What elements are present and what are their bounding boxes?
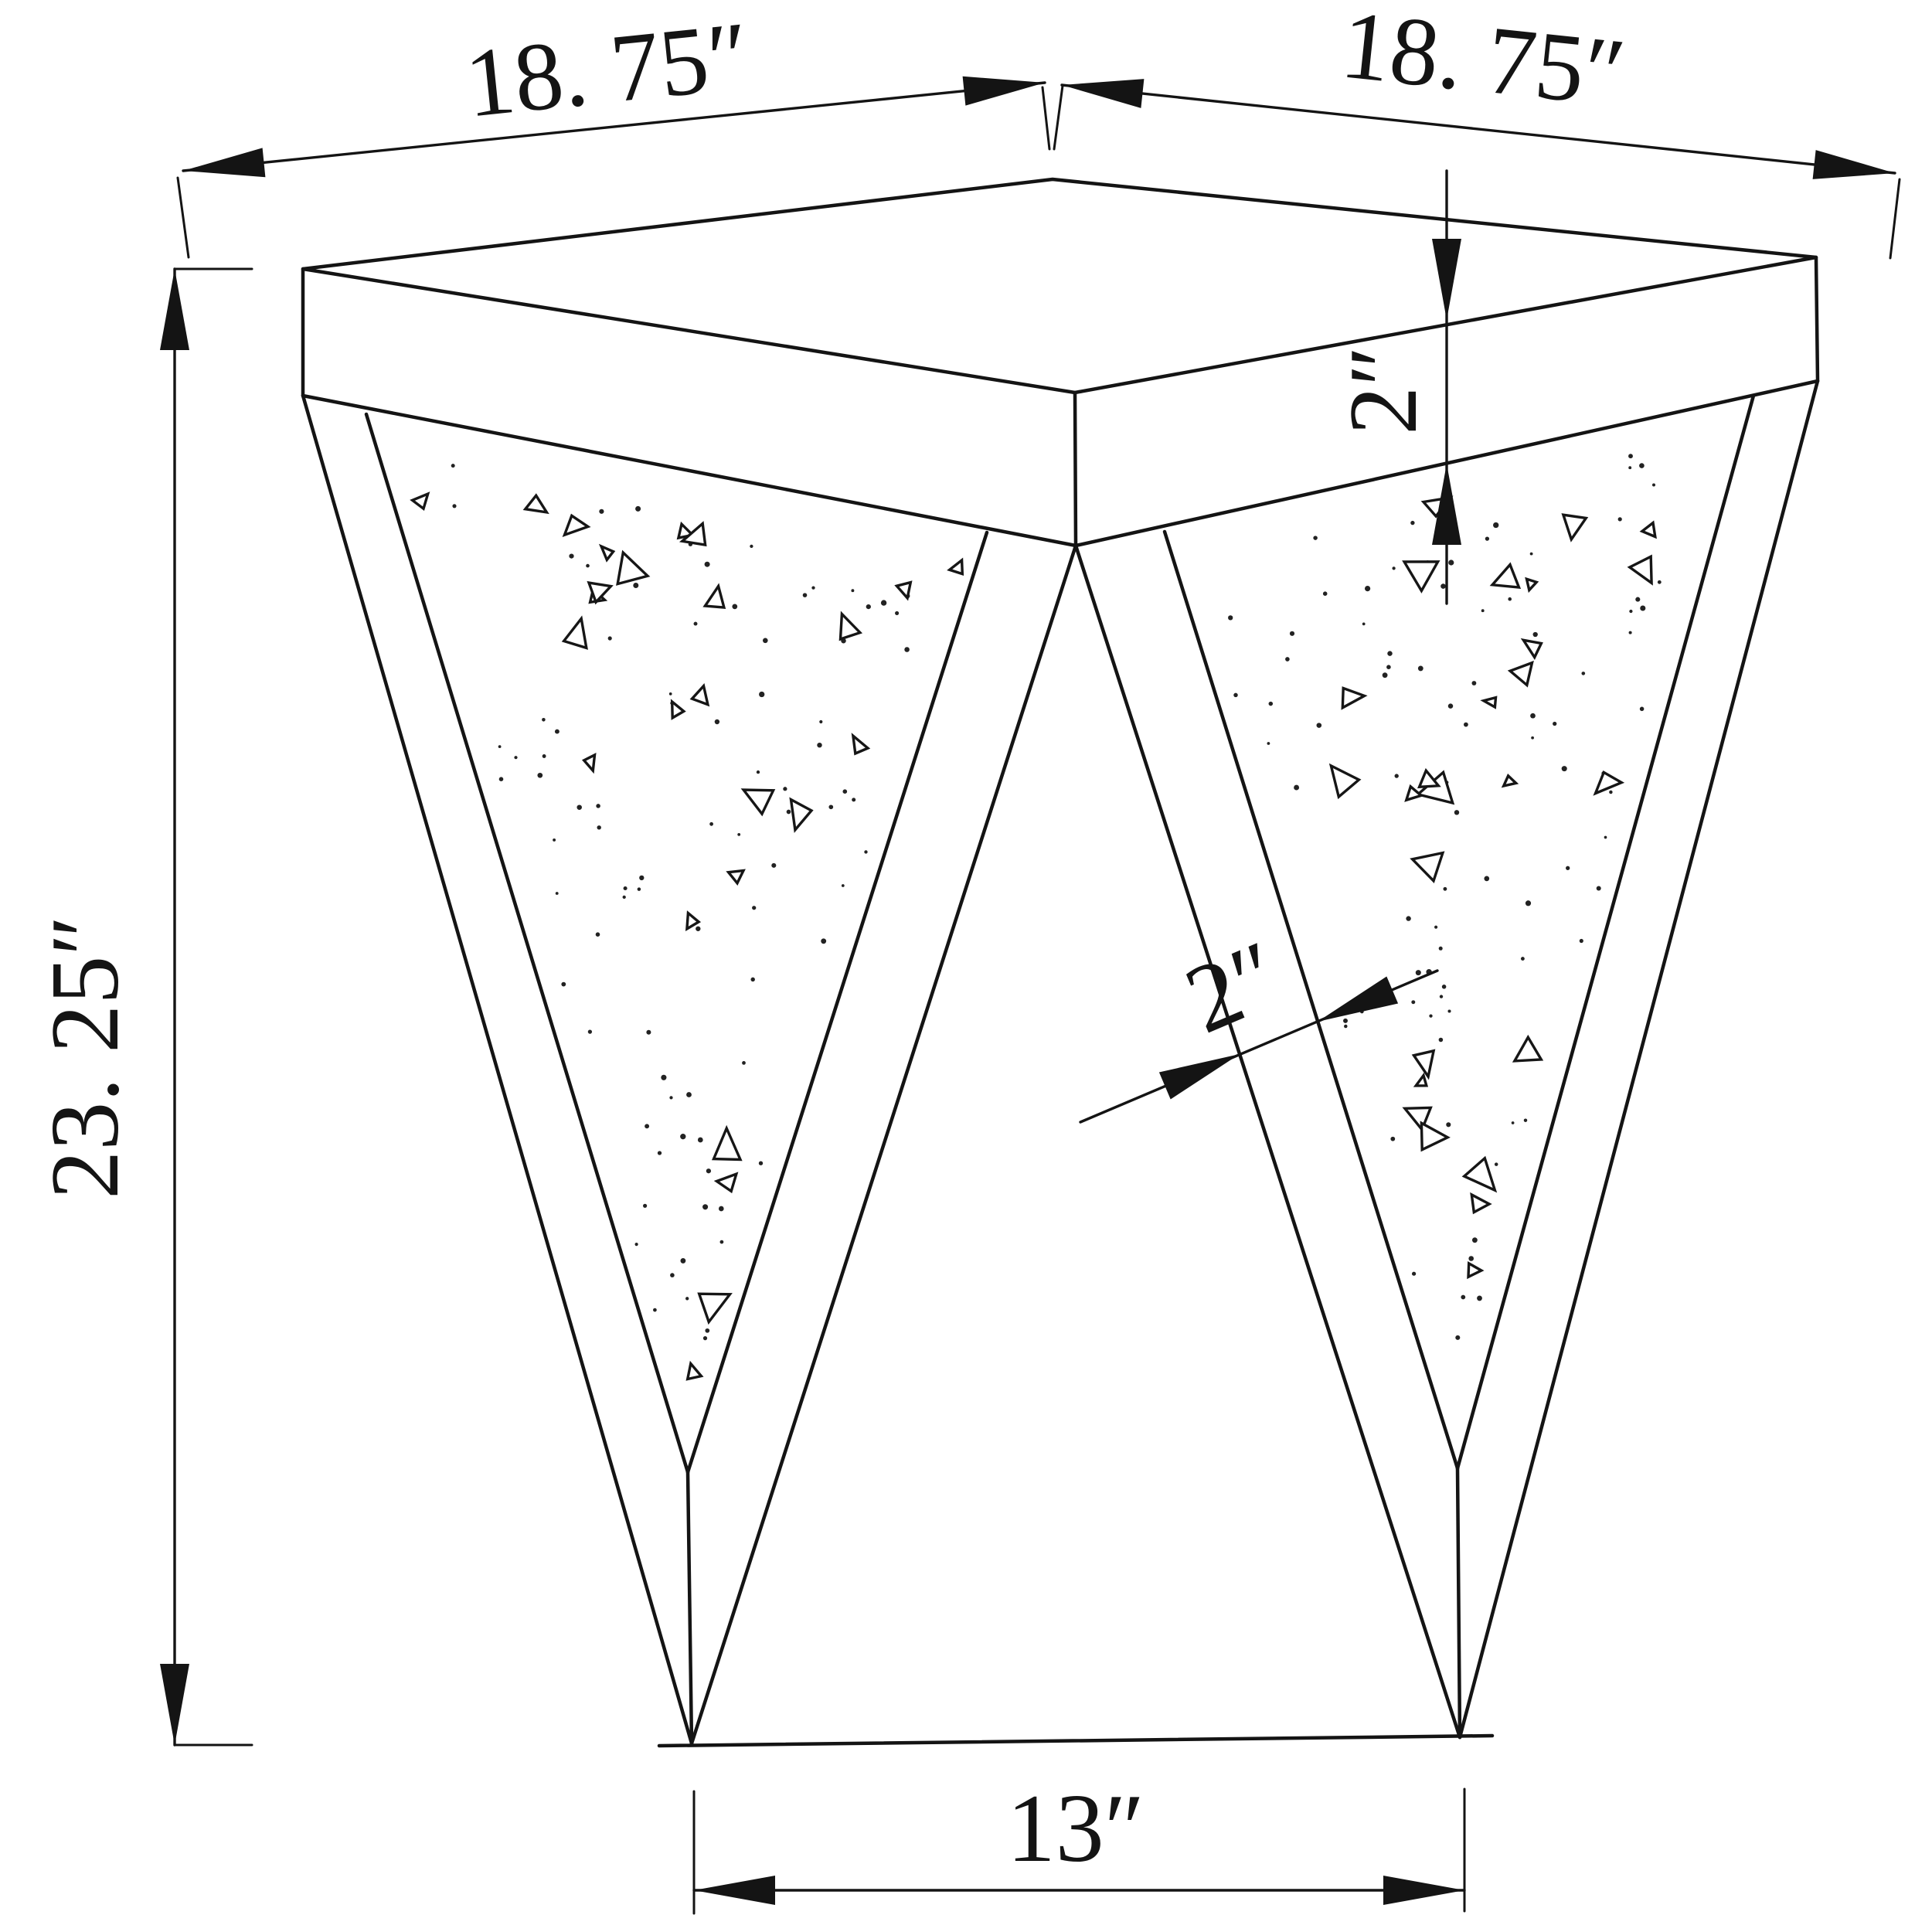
- speckle-dot: [680, 1134, 685, 1139]
- speckle-dot: [1639, 463, 1645, 468]
- speckle-dot: [1390, 1137, 1395, 1141]
- left-leg-outer-right-edge: [692, 546, 1076, 1743]
- speckle-dot: [752, 906, 756, 910]
- speckle-dot: [553, 838, 556, 842]
- speckle-triangle: [705, 587, 724, 608]
- speckle-dot: [732, 604, 737, 610]
- speckle-triangle: [564, 618, 587, 648]
- left-leg-outer-left-edge: [303, 396, 692, 1743]
- speckle-dot: [1658, 580, 1662, 584]
- speckle-dot: [1477, 1295, 1482, 1301]
- speckle-dot: [709, 822, 713, 826]
- speckle-dot: [586, 564, 590, 568]
- right-leg-seam-edge: [1458, 1468, 1460, 1737]
- speckle-triangle: [896, 583, 910, 598]
- speckle-dot: [705, 1328, 709, 1333]
- dim-height-arrow-bottom: [160, 1664, 189, 1745]
- speckle-triangle: [1510, 663, 1532, 685]
- speckle-triangle: [601, 546, 614, 560]
- speckle-triangle: [1404, 562, 1438, 591]
- speckle-dot: [694, 622, 698, 626]
- speckle-dot: [702, 1204, 708, 1209]
- speckle-dot: [1395, 774, 1399, 777]
- speckle-dot: [1628, 454, 1633, 458]
- speckle-triangle: [692, 686, 708, 705]
- speckle-dot: [851, 589, 854, 592]
- speckle-dot: [864, 850, 867, 853]
- speckle-dot: [1233, 693, 1238, 698]
- speckle-dot: [1365, 586, 1370, 591]
- speckle-dot: [828, 804, 833, 809]
- apex-extension-left: [1043, 87, 1049, 149]
- speckle-dot: [451, 464, 455, 468]
- dim-top-thickness: 2″: [1330, 171, 1461, 604]
- speckle-dot: [763, 638, 768, 643]
- speckle-dot: [669, 1096, 672, 1099]
- speckle-triangle: [1331, 766, 1359, 797]
- speckle-dot: [1484, 876, 1489, 882]
- speckle-triangle: [672, 702, 684, 718]
- speckle-dot: [881, 600, 886, 605]
- speckle-dot: [608, 636, 612, 640]
- speckle-dot: [1446, 1122, 1451, 1127]
- speckle-dot: [599, 509, 604, 514]
- dim-overall-height: 23. 25″: [32, 269, 252, 1745]
- speckle-dot: [1439, 947, 1443, 951]
- speckle-dot: [680, 1258, 685, 1264]
- tabletop-fascia-bottom-edges: [303, 381, 1818, 546]
- dim-top-left-width: 18. 75″: [178, 2, 1045, 257]
- dim-thickness-label: 2″: [1330, 345, 1437, 434]
- speckle-dot: [633, 583, 638, 588]
- speckle-dot: [1629, 610, 1632, 613]
- speckle-triangle: [950, 560, 963, 574]
- speckle-dot: [1343, 1019, 1348, 1023]
- speckle-dot: [643, 1204, 647, 1208]
- dim-leg-width-label: 2″: [1171, 920, 1295, 1054]
- speckle-triangle: [1416, 1076, 1427, 1086]
- speckle-dot: [1640, 605, 1645, 611]
- speckle-dot: [1439, 1038, 1444, 1043]
- speckle-dot: [1461, 1295, 1465, 1300]
- speckle-dot: [1508, 597, 1512, 601]
- speckle-dot: [569, 554, 573, 559]
- speckle-dot: [1285, 657, 1290, 662]
- tabletop-fascia-right-corner-edge: [1816, 257, 1818, 381]
- speckle-dot: [1448, 560, 1454, 565]
- speckle-dot: [542, 718, 546, 722]
- speckle-dot: [759, 692, 764, 697]
- speckle-dot: [819, 720, 822, 723]
- speckle-dot: [698, 1138, 703, 1143]
- drawing-page: 18. 75″ 18. 75″ 23. 25″ 2″ 2″: [0, 0, 1932, 1932]
- speckle-dot: [1429, 1014, 1432, 1017]
- speckle-dot: [1383, 672, 1388, 678]
- speckle-dot: [866, 604, 871, 609]
- speckle-triangle: [791, 800, 812, 830]
- speckle-triangle: [565, 515, 588, 535]
- speckle-dot: [1566, 866, 1570, 870]
- speckle-dot: [537, 773, 543, 778]
- speckle-dot: [452, 504, 456, 508]
- speckle-dot: [1472, 1237, 1478, 1243]
- dim-top-right-label: 18. 75″: [1336, 0, 1630, 128]
- speckle-dot: [1440, 995, 1443, 998]
- speckle-dot: [1454, 810, 1459, 815]
- speckle-triangle: [1630, 556, 1651, 583]
- dim-leg-width-arrow-left: [1159, 1054, 1240, 1100]
- right-leg-outer-left-edge: [1076, 546, 1460, 1737]
- speckle-triangle: [853, 736, 868, 753]
- speckle-dot: [1411, 1000, 1415, 1004]
- speckle-dot: [1290, 631, 1294, 636]
- dim-bottom-span: 13″: [694, 1775, 1464, 1913]
- speckle-dot: [658, 1151, 662, 1155]
- speckle-dot: [1294, 785, 1299, 791]
- speckle-dot: [719, 1206, 724, 1212]
- technical-drawing-canvas: 18. 75″ 18. 75″ 23. 25″ 2″ 2″: [0, 0, 1932, 1932]
- speckle-triangle: [1563, 515, 1586, 539]
- speckle-dot: [1269, 702, 1274, 706]
- speckle-triangle: [1471, 1195, 1489, 1213]
- speckle-dot: [737, 833, 740, 836]
- speckle-dot: [638, 887, 641, 891]
- speckle-dot: [817, 743, 821, 747]
- speckle-dot: [1448, 703, 1453, 708]
- speckle-dot: [596, 932, 600, 937]
- speckle-triangle: [413, 494, 428, 509]
- speckle-triangle: [1504, 776, 1516, 786]
- dim-height-arrow-top: [160, 269, 189, 350]
- dim-leg-frame-width: 2″: [1080, 920, 1437, 1122]
- speckle-triangle: [1468, 1264, 1481, 1277]
- speckle-triangle: [699, 1294, 730, 1321]
- dim-bottom-label: 13″: [1007, 1775, 1145, 1883]
- speckle-dot: [759, 1162, 763, 1165]
- speckle-dot: [1628, 466, 1631, 469]
- dim-bottom-arrow-right: [1383, 1876, 1464, 1905]
- speckle-dot: [498, 745, 502, 748]
- dim-top-apex-extensions: [1043, 86, 1063, 149]
- speckle-dot: [1553, 722, 1556, 726]
- speckle-dot: [1618, 517, 1622, 521]
- speckle-triangle: [1421, 1123, 1447, 1149]
- speckle-dot: [645, 1124, 649, 1128]
- speckle-dot: [1442, 985, 1447, 989]
- speckle-dot: [842, 789, 847, 794]
- speckle-dot: [742, 1061, 746, 1065]
- speckle-triangle: [841, 614, 860, 640]
- tabletop-top-surface: [303, 179, 1816, 393]
- dim-top-right-extension: [1890, 179, 1900, 258]
- speckle-dot: [686, 1092, 692, 1097]
- speckle-dot: [1228, 615, 1233, 620]
- speckle-dot: [1597, 886, 1601, 890]
- speckle-triangle: [584, 755, 595, 770]
- speckle-triangle: [1413, 853, 1443, 881]
- speckle-triangle: [1342, 689, 1364, 708]
- speckle-dot: [577, 804, 582, 810]
- speckle-dot: [705, 562, 710, 567]
- speckle-dot: [1530, 713, 1536, 719]
- speckle-triangle: [1484, 698, 1496, 707]
- speckle-dot: [895, 611, 899, 615]
- speckle-dot: [635, 506, 641, 512]
- speckle-dot: [1652, 484, 1655, 487]
- speckle-triangle: [617, 553, 648, 584]
- speckle-dot: [624, 886, 628, 890]
- speckle-dot: [670, 1273, 675, 1277]
- speckle-dot: [1313, 536, 1318, 540]
- speckle-dot: [1317, 723, 1322, 728]
- speckle-dot: [1524, 1118, 1527, 1121]
- speckle-dot: [1412, 1272, 1416, 1276]
- speckle-triangle: [687, 913, 699, 929]
- speckle-dot: [1526, 900, 1531, 906]
- speckle-triangle: [1596, 772, 1622, 793]
- speckle-dot: [661, 1075, 666, 1080]
- dim-thickness-arrow-down: [1432, 239, 1461, 320]
- speckle-dot: [597, 825, 600, 829]
- speckle-dot: [720, 1240, 724, 1244]
- speckle-triangle: [1523, 640, 1541, 657]
- dim-bottom-arrow-left: [694, 1876, 775, 1905]
- left-leg-seam-edge: [688, 1472, 692, 1743]
- speckle-triangle: [1515, 1037, 1541, 1061]
- apex-extension-right: [1054, 86, 1063, 149]
- speckle-dot: [561, 982, 566, 987]
- dim-top-right-arrow-left: [1062, 79, 1144, 108]
- dim-height-label: 23. 25″: [32, 915, 139, 1199]
- speckle-dot: [811, 586, 815, 589]
- speckle-dot: [1629, 631, 1632, 634]
- speckle-dot: [1455, 1335, 1460, 1340]
- speckle-dot: [543, 754, 546, 758]
- speckle-dot: [1410, 521, 1414, 525]
- speckle-dot: [646, 1030, 651, 1035]
- speckle-triangle: [1527, 579, 1537, 590]
- speckle-triangle: [1414, 1051, 1434, 1077]
- dim-leg-width-arrow-right: [1318, 977, 1398, 1022]
- speckle-dot: [653, 1308, 657, 1312]
- speckle-triangle: [743, 790, 774, 814]
- dim-top-right-arrow-right: [1813, 150, 1895, 179]
- speckle-dot: [555, 730, 560, 734]
- speckle-dot: [1512, 1121, 1515, 1124]
- speckle-dot: [1485, 536, 1489, 540]
- dim-top-left-extension: [178, 178, 189, 257]
- speckle-dot: [706, 1168, 711, 1173]
- speckle-triangle: [1406, 787, 1421, 801]
- speckle-dot: [904, 647, 910, 652]
- speckle-dot: [1362, 623, 1366, 626]
- speckle-dot: [842, 884, 845, 887]
- speckle-dot: [514, 756, 517, 759]
- speckle-triangle: [714, 1128, 741, 1160]
- speckle-dot: [1392, 566, 1395, 570]
- floor-line: [659, 1736, 1492, 1746]
- speckle-dot: [1533, 632, 1538, 637]
- speckle-dot: [685, 1297, 689, 1300]
- speckle-dot: [1481, 609, 1485, 612]
- speckle-dot: [1447, 1009, 1451, 1012]
- speckle-dot: [771, 863, 776, 868]
- speckle-dot: [499, 777, 504, 781]
- speckle-dot: [852, 798, 855, 801]
- speckle-dot: [1521, 957, 1525, 961]
- speckle-dot: [757, 770, 760, 774]
- speckle-dot: [1267, 742, 1270, 745]
- speckle-dot: [703, 1336, 707, 1340]
- speckle-dot: [1434, 926, 1437, 929]
- left-leg-speckle-texture: [413, 464, 963, 1379]
- speckle-dot: [596, 804, 600, 808]
- speckle-triangle: [1642, 523, 1655, 537]
- left-leg: [303, 396, 1076, 1743]
- speckle-dot: [639, 876, 644, 880]
- left-leg-inner-right-edge: [688, 532, 987, 1472]
- speckle-dot: [1471, 681, 1476, 685]
- speckle-dot: [588, 1029, 592, 1033]
- speckle-dot: [783, 787, 787, 791]
- speckle-dot: [1443, 887, 1447, 891]
- speckle-triangle: [1492, 565, 1519, 588]
- speckle-dot: [1604, 836, 1607, 839]
- speckle-dot: [696, 927, 700, 931]
- table-body: [303, 179, 1818, 1746]
- speckle-dot: [750, 545, 753, 548]
- speckle-dot: [1344, 1025, 1347, 1028]
- speckle-dot: [1493, 522, 1498, 528]
- speckle-dot: [1323, 591, 1328, 596]
- right-leg-speckle-texture: [1228, 454, 1662, 1340]
- speckle-dot: [787, 810, 791, 815]
- speckle-dot: [1440, 583, 1446, 589]
- speckle-dot: [669, 692, 672, 696]
- speckle-dot: [1418, 665, 1423, 671]
- speckle-triangle: [729, 871, 743, 883]
- speckle-triangle: [1464, 1158, 1495, 1191]
- dim-top-left-arrow-left: [183, 148, 265, 177]
- right-leg-inner-right-edge: [1458, 396, 1753, 1468]
- speckle-dot: [1406, 916, 1410, 920]
- speckle-dot: [821, 938, 826, 944]
- speckle-dot: [1386, 665, 1391, 669]
- speckle-dot: [1387, 651, 1392, 655]
- speckle-dot: [750, 978, 754, 981]
- speckle-dot: [1580, 939, 1583, 943]
- dim-top-left-arrow-right: [963, 77, 1045, 106]
- speckle-dot: [1495, 1162, 1498, 1166]
- speckle-triangle: [526, 495, 547, 512]
- speckle-dot: [1531, 736, 1534, 740]
- speckle-dot: [635, 1243, 638, 1246]
- speckle-triangle: [688, 1364, 702, 1379]
- speckle-dot: [1530, 553, 1533, 556]
- speckle-dot: [715, 719, 719, 724]
- speckle-dot: [1581, 672, 1585, 675]
- speckle-dot: [1609, 791, 1612, 794]
- speckle-dot: [1635, 597, 1640, 602]
- speckle-dot: [803, 593, 808, 597]
- speckle-dot: [623, 896, 626, 899]
- tabletop-fascia-front-corner-edge: [1075, 393, 1076, 546]
- speckle-dot: [556, 892, 559, 895]
- speckle-dot: [1640, 707, 1645, 712]
- speckle-dot: [1468, 1256, 1474, 1261]
- speckle-dot: [1416, 970, 1421, 975]
- dim-top-right-width: 18. 75″: [1062, 0, 1900, 258]
- speckle-dot: [1464, 723, 1468, 727]
- speckle-triangle: [716, 1174, 736, 1191]
- speckle-dot: [1562, 766, 1567, 771]
